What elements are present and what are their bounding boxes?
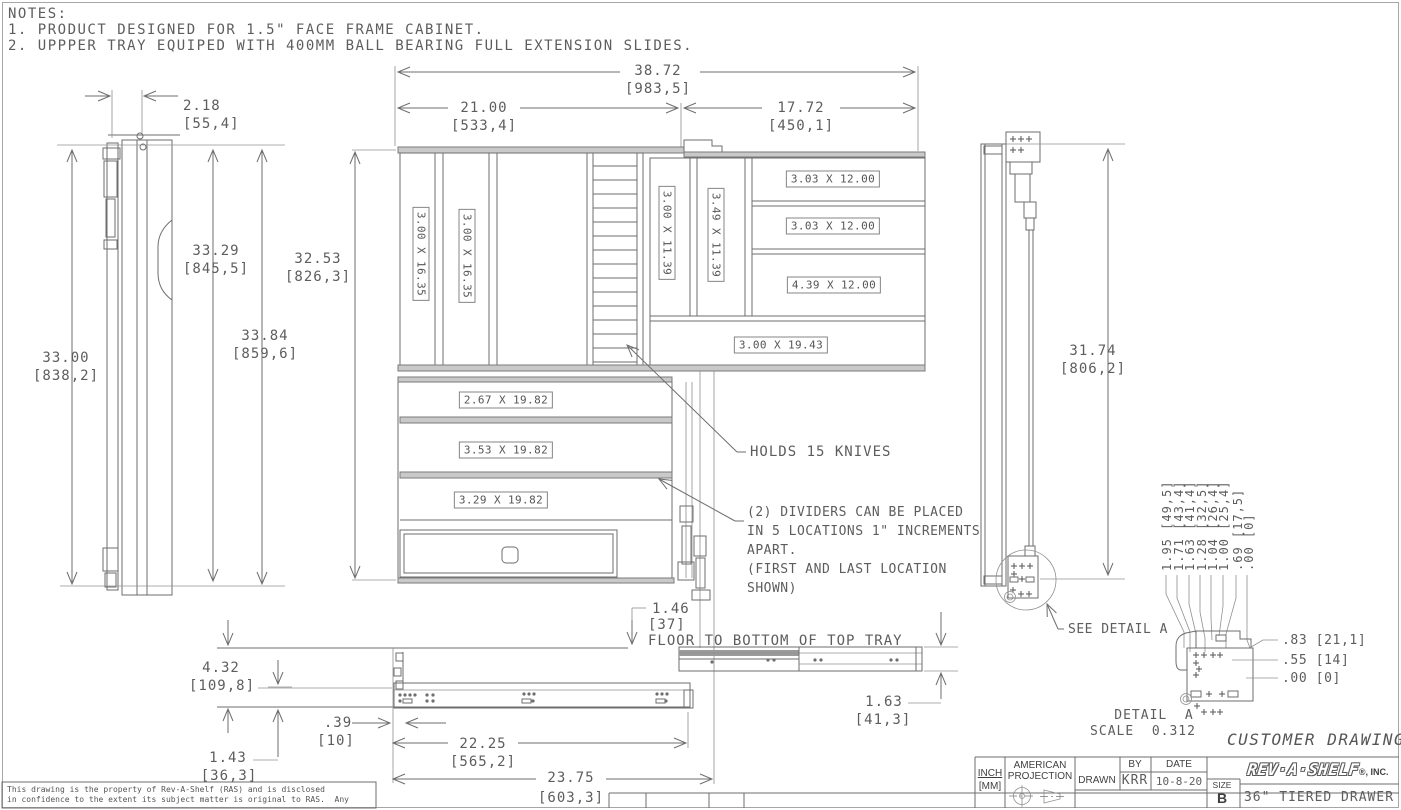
- drawer-slot-label: 2.67 X 19.82: [459, 392, 553, 409]
- detail-a-scale: SCALE 0.312: [1090, 724, 1196, 740]
- dividers-callout-line1: (2) DIVIDERS CAN BE PLACED: [747, 505, 964, 521]
- tray-slot-label: 3.00 X 11.39: [659, 186, 676, 280]
- dim-17-72-mm: [450,1]: [768, 118, 834, 136]
- dim-1-63-in: 1.63: [865, 694, 903, 712]
- dim-31-74-in: 31.74: [1069, 343, 1116, 361]
- customer-drawing-label: CUSTOMER DRAWING: [1227, 730, 1401, 750]
- dim-1-46-mm: [37]: [648, 617, 686, 635]
- dim-17-72-in: 17.72: [777, 100, 824, 118]
- see-detail-leader: [1047, 604, 1058, 629]
- dim-2-18-mm: [55,4]: [183, 116, 240, 134]
- dim-23-75-mm: [603,3]: [538, 790, 604, 808]
- dim-1-43-mm: [36,3]: [201, 768, 258, 786]
- drawn-label: DRAWN: [1078, 775, 1115, 788]
- drawer-slot-label: 3.53 X 19.82: [459, 442, 553, 459]
- dim-1-63-mm: [41,3]: [855, 712, 912, 730]
- knives-callout: HOLDS 15 KNIVES: [750, 444, 891, 462]
- date-label: DATE: [1166, 759, 1192, 772]
- dim-39-in: .39: [324, 715, 352, 733]
- dim-22-25-in: 22.25: [459, 736, 506, 754]
- detail-stack-dim: 1.00 [25,4]: [1218, 481, 1231, 571]
- dim-33-29-mm: [845,5]: [183, 261, 249, 279]
- by-label: BY: [1128, 759, 1141, 772]
- detail-a-geometry: [1166, 575, 1278, 715]
- dim-38-72-in: 38.72: [634, 63, 681, 81]
- drawn-by-value: KRR: [1122, 773, 1148, 789]
- logo: REV·A·SHELF®, INC.: [1247, 760, 1388, 780]
- floor-note: FLOOR TO BOTTOM OF TOP TRAY: [648, 633, 903, 651]
- dim-4-32-in: 4.32: [202, 660, 240, 678]
- dim-4-32-mm: [109,8]: [189, 678, 255, 696]
- note-2: 2. UPPPER TRAY EQUIPED WITH 400MM BALL B…: [8, 38, 693, 56]
- dim-1-43-in: 1.43: [209, 750, 247, 768]
- detail-stack-dim: .00 [0]: [1243, 513, 1256, 571]
- dim-33-00-mm: [838,2]: [33, 368, 99, 386]
- dim-39-mm: [10]: [317, 733, 355, 751]
- dividers-callout-line4: (FIRST AND LAST LOCATION: [747, 562, 947, 578]
- dim-21-00-mm: [533,4]: [451, 118, 517, 136]
- tray-slot-label: 3.03 X 12.00: [786, 171, 880, 188]
- dim-32-53-mm: [826,3]: [285, 269, 351, 287]
- dividers-leader: [659, 479, 735, 521]
- tray-slot-label: 3.00 X 16.35: [459, 209, 476, 303]
- third-angle-projection-icon: [1009, 785, 1064, 807]
- note-1: 1. PRODUCT DESIGNED FOR 1.5" FACE FRAME …: [8, 22, 485, 40]
- dividers-callout-line3: APART.: [747, 543, 797, 559]
- dim-33-84-mm: [859,6]: [232, 346, 298, 364]
- dim-33-29-in: 33.29: [192, 243, 239, 261]
- dividers-callout-line5: SHOWN): [747, 581, 797, 597]
- dim-23-75-in: 23.75: [547, 770, 594, 788]
- see-detail-a-label: SEE DETAIL A: [1068, 622, 1168, 638]
- tray-slot-label: 3.49 X 11.39: [708, 188, 725, 282]
- right-side-view-geometry: [981, 132, 1125, 629]
- knife-block-slats: [593, 166, 637, 362]
- units-mm: [MM]: [979, 781, 1001, 794]
- dim-32-53-in: 32.53: [294, 251, 341, 269]
- disclaimer-line1: This drawing is the property of Rev-A-Sh…: [7, 785, 325, 794]
- dim-31-74-mm: [806,2]: [1060, 361, 1126, 379]
- customer-drawing-sheet: NOTES: 1. PRODUCT DESIGNED FOR 1.5" FACE…: [0, 0, 1401, 810]
- tray-slot-label: 3.00 X 16.35: [413, 207, 430, 301]
- dim-38-72-mm: [983,5]: [625, 81, 691, 99]
- units-inch: INCH: [978, 768, 1002, 781]
- size-value: B: [1217, 790, 1227, 808]
- knives-leader: [627, 345, 737, 452]
- dim-22-25-mm: [565,2]: [450, 754, 516, 772]
- dividers-callout-line2: IN 5 LOCATIONS 1" INCREMENTS: [747, 524, 980, 540]
- dim-21-00-in: 21.00: [460, 100, 507, 118]
- logo-suffix: ®, INC.: [1359, 767, 1389, 777]
- dim-33-84-in: 33.84: [241, 328, 288, 346]
- dim-33-00-in: 33.00: [42, 350, 89, 368]
- detail-dim-55: .55 [14]: [1282, 653, 1349, 669]
- drawing-title: 36" TIERED DRAWER: [1244, 790, 1394, 806]
- notes-title: NOTES:: [8, 6, 68, 24]
- tray-slot-label: 3.03 X 12.00: [786, 218, 880, 235]
- disclaimer-line2: in confidence to the extent its subject …: [7, 795, 349, 804]
- dim-1-46-in: 1.46: [652, 601, 690, 619]
- detail-dim-00: .00 [0]: [1282, 671, 1341, 687]
- tray-slot-label: 4.39 X 12.00: [787, 277, 881, 294]
- projection-label-2: PROJECTION: [1008, 771, 1072, 784]
- detail-dim-83: .83 [21,1]: [1282, 633, 1366, 649]
- date-value: 10-8-20: [1156, 775, 1202, 789]
- drawer-slot-label: 3.29 X 19.82: [454, 492, 548, 509]
- tray-slot-label: 3.00 X 19.43: [734, 337, 828, 354]
- dim-2-18-in: 2.18: [183, 98, 221, 116]
- detail-a-caption: DETAIL A: [1114, 708, 1193, 724]
- logo-text: REV·A·SHELF: [1246, 760, 1360, 780]
